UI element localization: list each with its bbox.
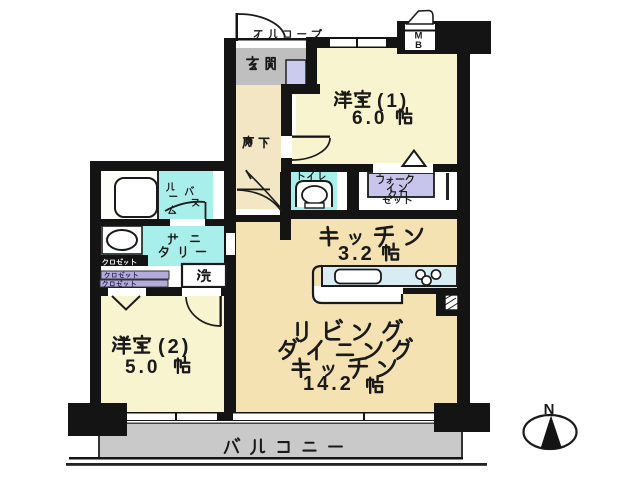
svg-text:14.2: 14.2	[303, 373, 354, 395]
svg-text:5.0: 5.0	[125, 357, 160, 378]
svg-text:(2): (2)	[158, 336, 191, 358]
svg-text:N: N	[544, 401, 558, 418]
svg-text:3.2: 3.2	[338, 243, 375, 265]
svg-text:B: B	[415, 40, 425, 51]
svg-text:6.0: 6.0	[352, 108, 387, 129]
